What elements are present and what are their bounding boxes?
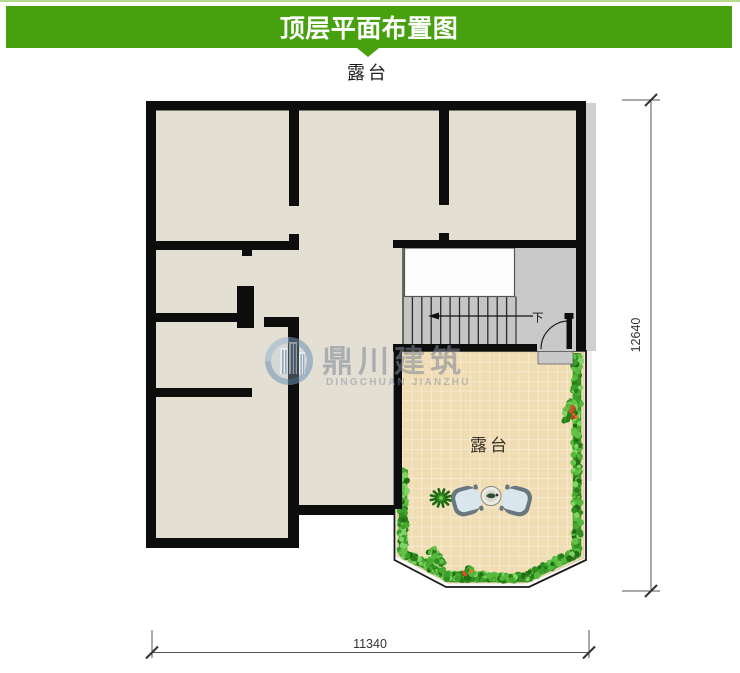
svg-text:12640: 12640 (629, 318, 643, 353)
svg-text:露台: 露台 (347, 63, 389, 83)
svg-text:11340: 11340 (353, 637, 387, 651)
svg-text:鼎川建筑: 鼎川建筑 (322, 344, 466, 379)
svg-text:下: 下 (532, 313, 544, 325)
svg-text:露台: 露台 (470, 436, 510, 455)
svg-text:DINGCHUAN JIANZHU: DINGCHUAN JIANZHU (326, 377, 471, 388)
